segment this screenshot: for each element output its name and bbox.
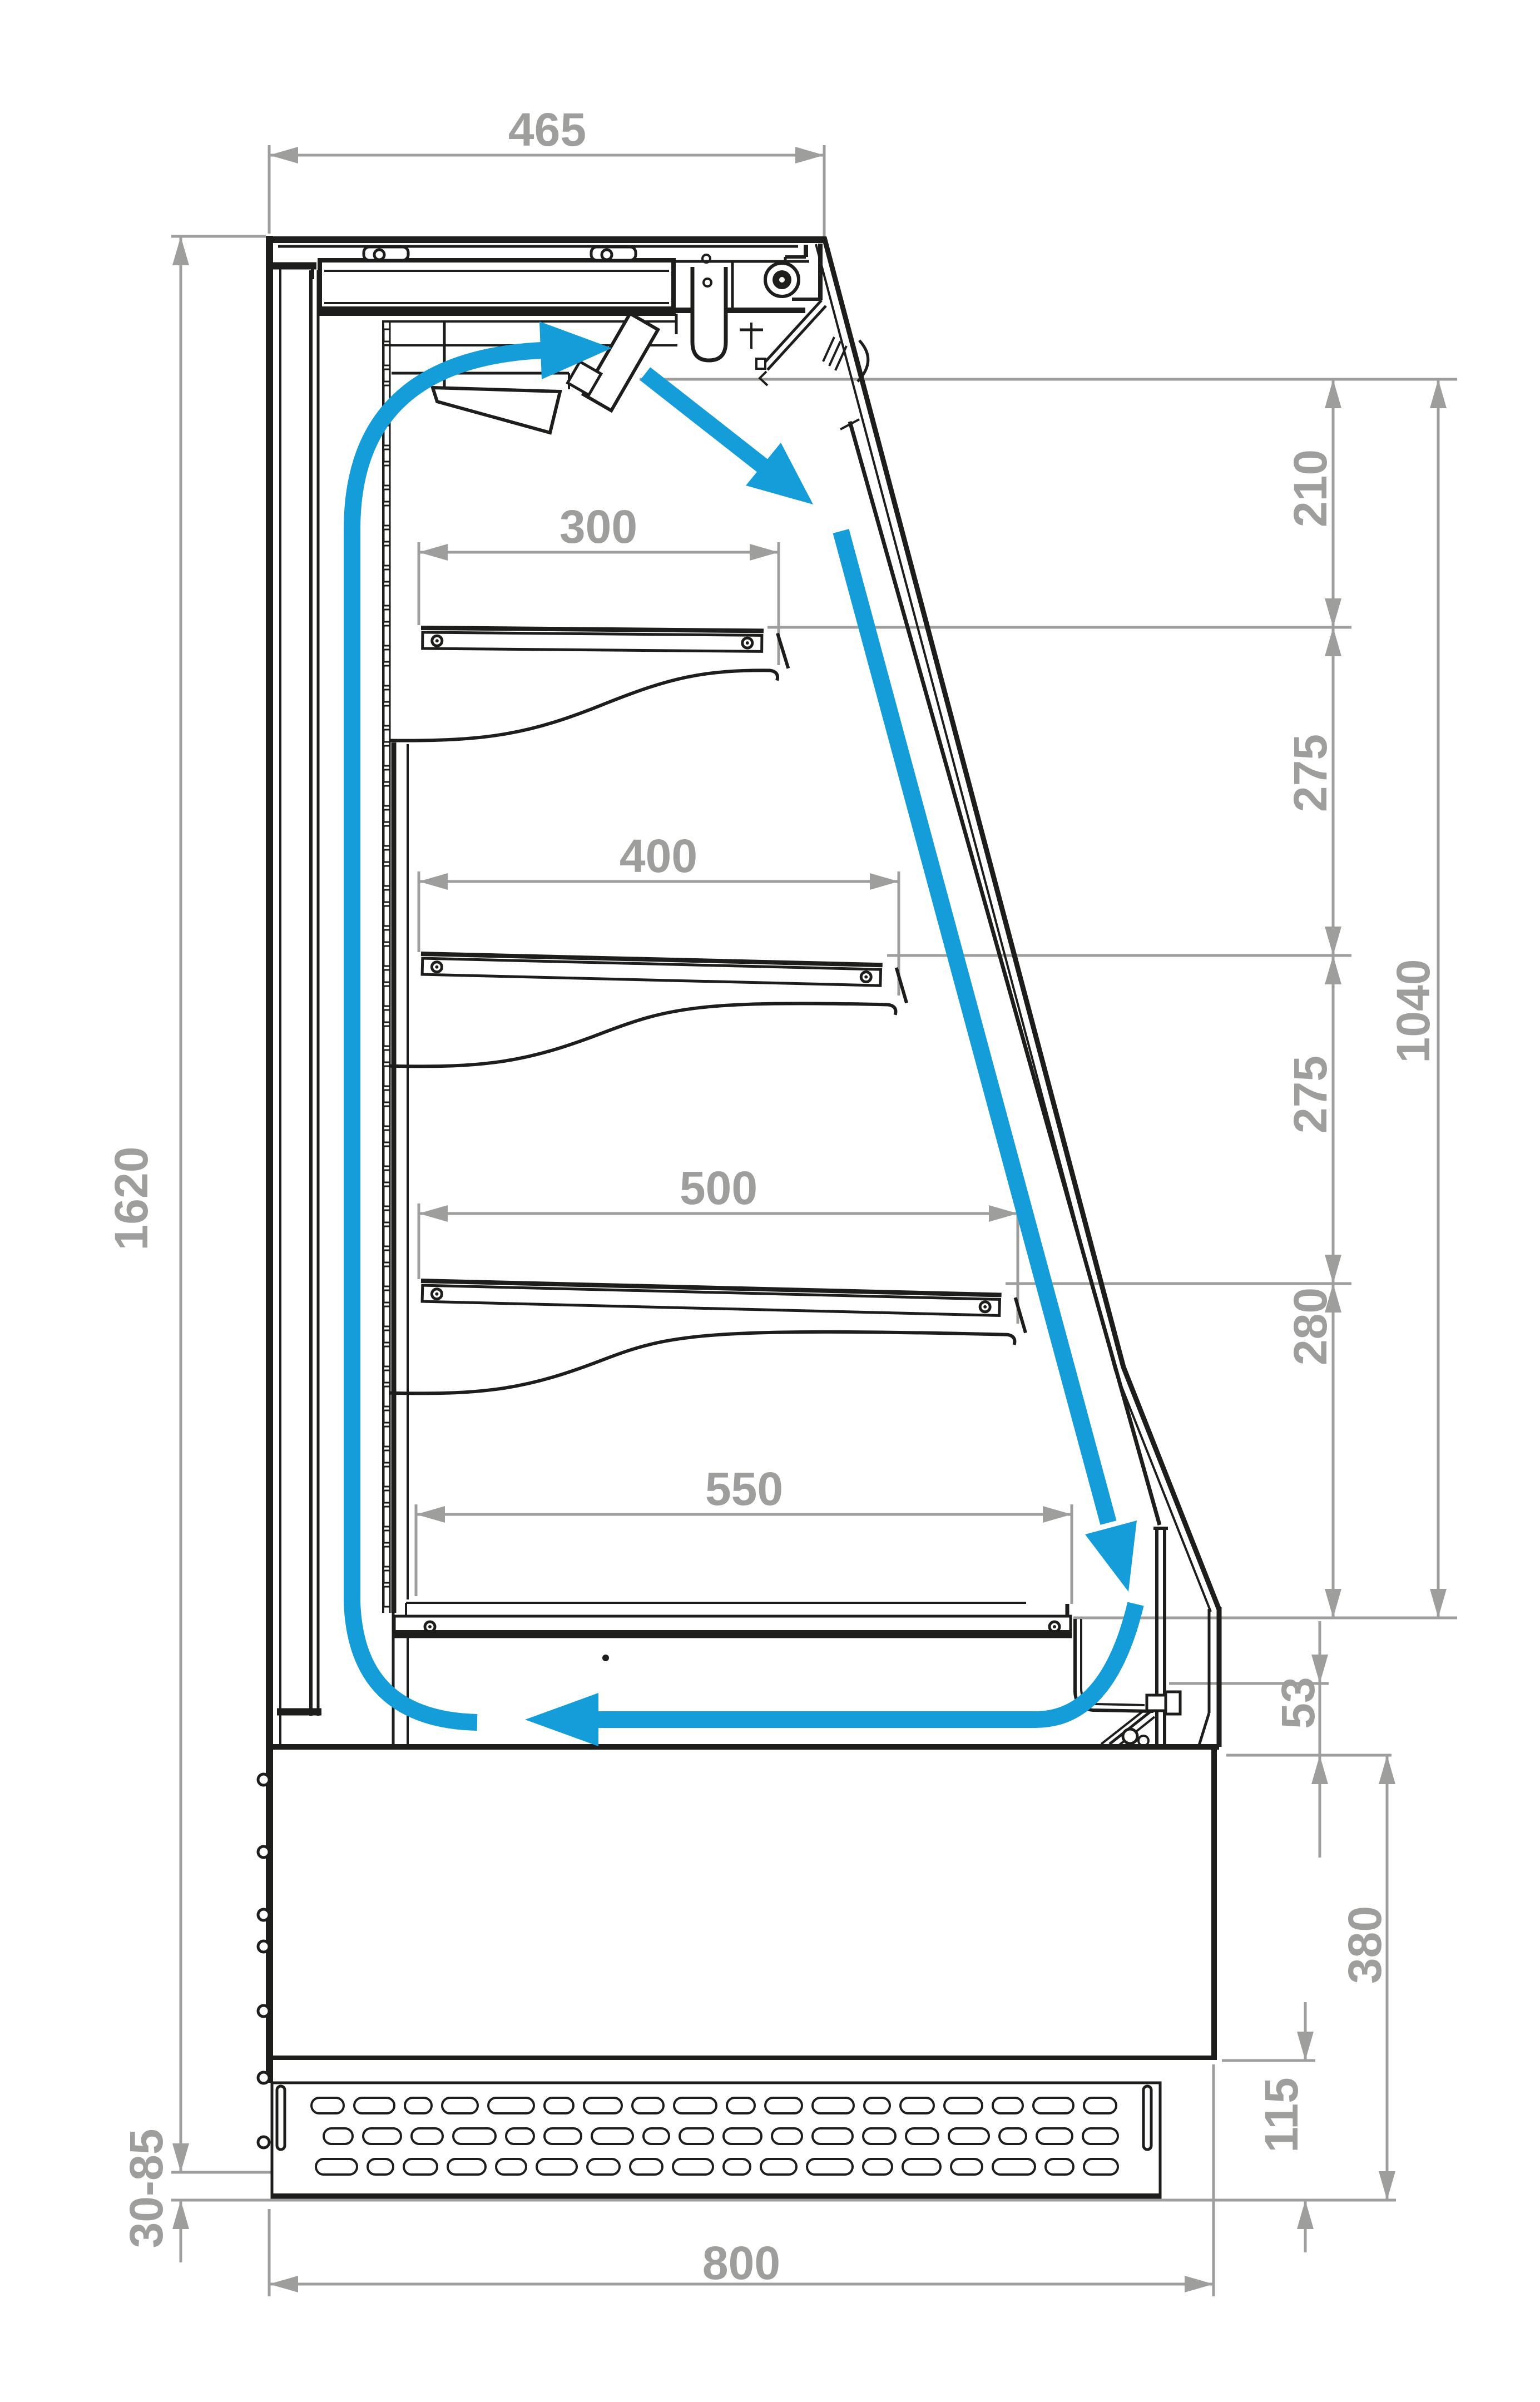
svg-text:53: 53 — [1272, 1677, 1324, 1729]
svg-text:275: 275 — [1284, 1056, 1336, 1133]
svg-text:115: 115 — [1255, 2077, 1308, 2153]
svg-text:800: 800 — [702, 2237, 780, 2289]
svg-text:500: 500 — [680, 1162, 757, 1214]
svg-text:280: 280 — [1284, 1287, 1336, 1365]
svg-text:30-85: 30-85 — [120, 2129, 172, 2249]
svg-text:1620: 1620 — [105, 1147, 157, 1251]
svg-text:210: 210 — [1284, 449, 1336, 527]
svg-text:300: 300 — [559, 501, 637, 553]
svg-text:380: 380 — [1339, 1906, 1391, 1984]
svg-text:550: 550 — [705, 1463, 783, 1515]
svg-text:400: 400 — [620, 830, 697, 882]
svg-text:1040: 1040 — [1387, 959, 1439, 1063]
svg-text:465: 465 — [508, 103, 586, 156]
svg-text:275: 275 — [1284, 734, 1336, 812]
